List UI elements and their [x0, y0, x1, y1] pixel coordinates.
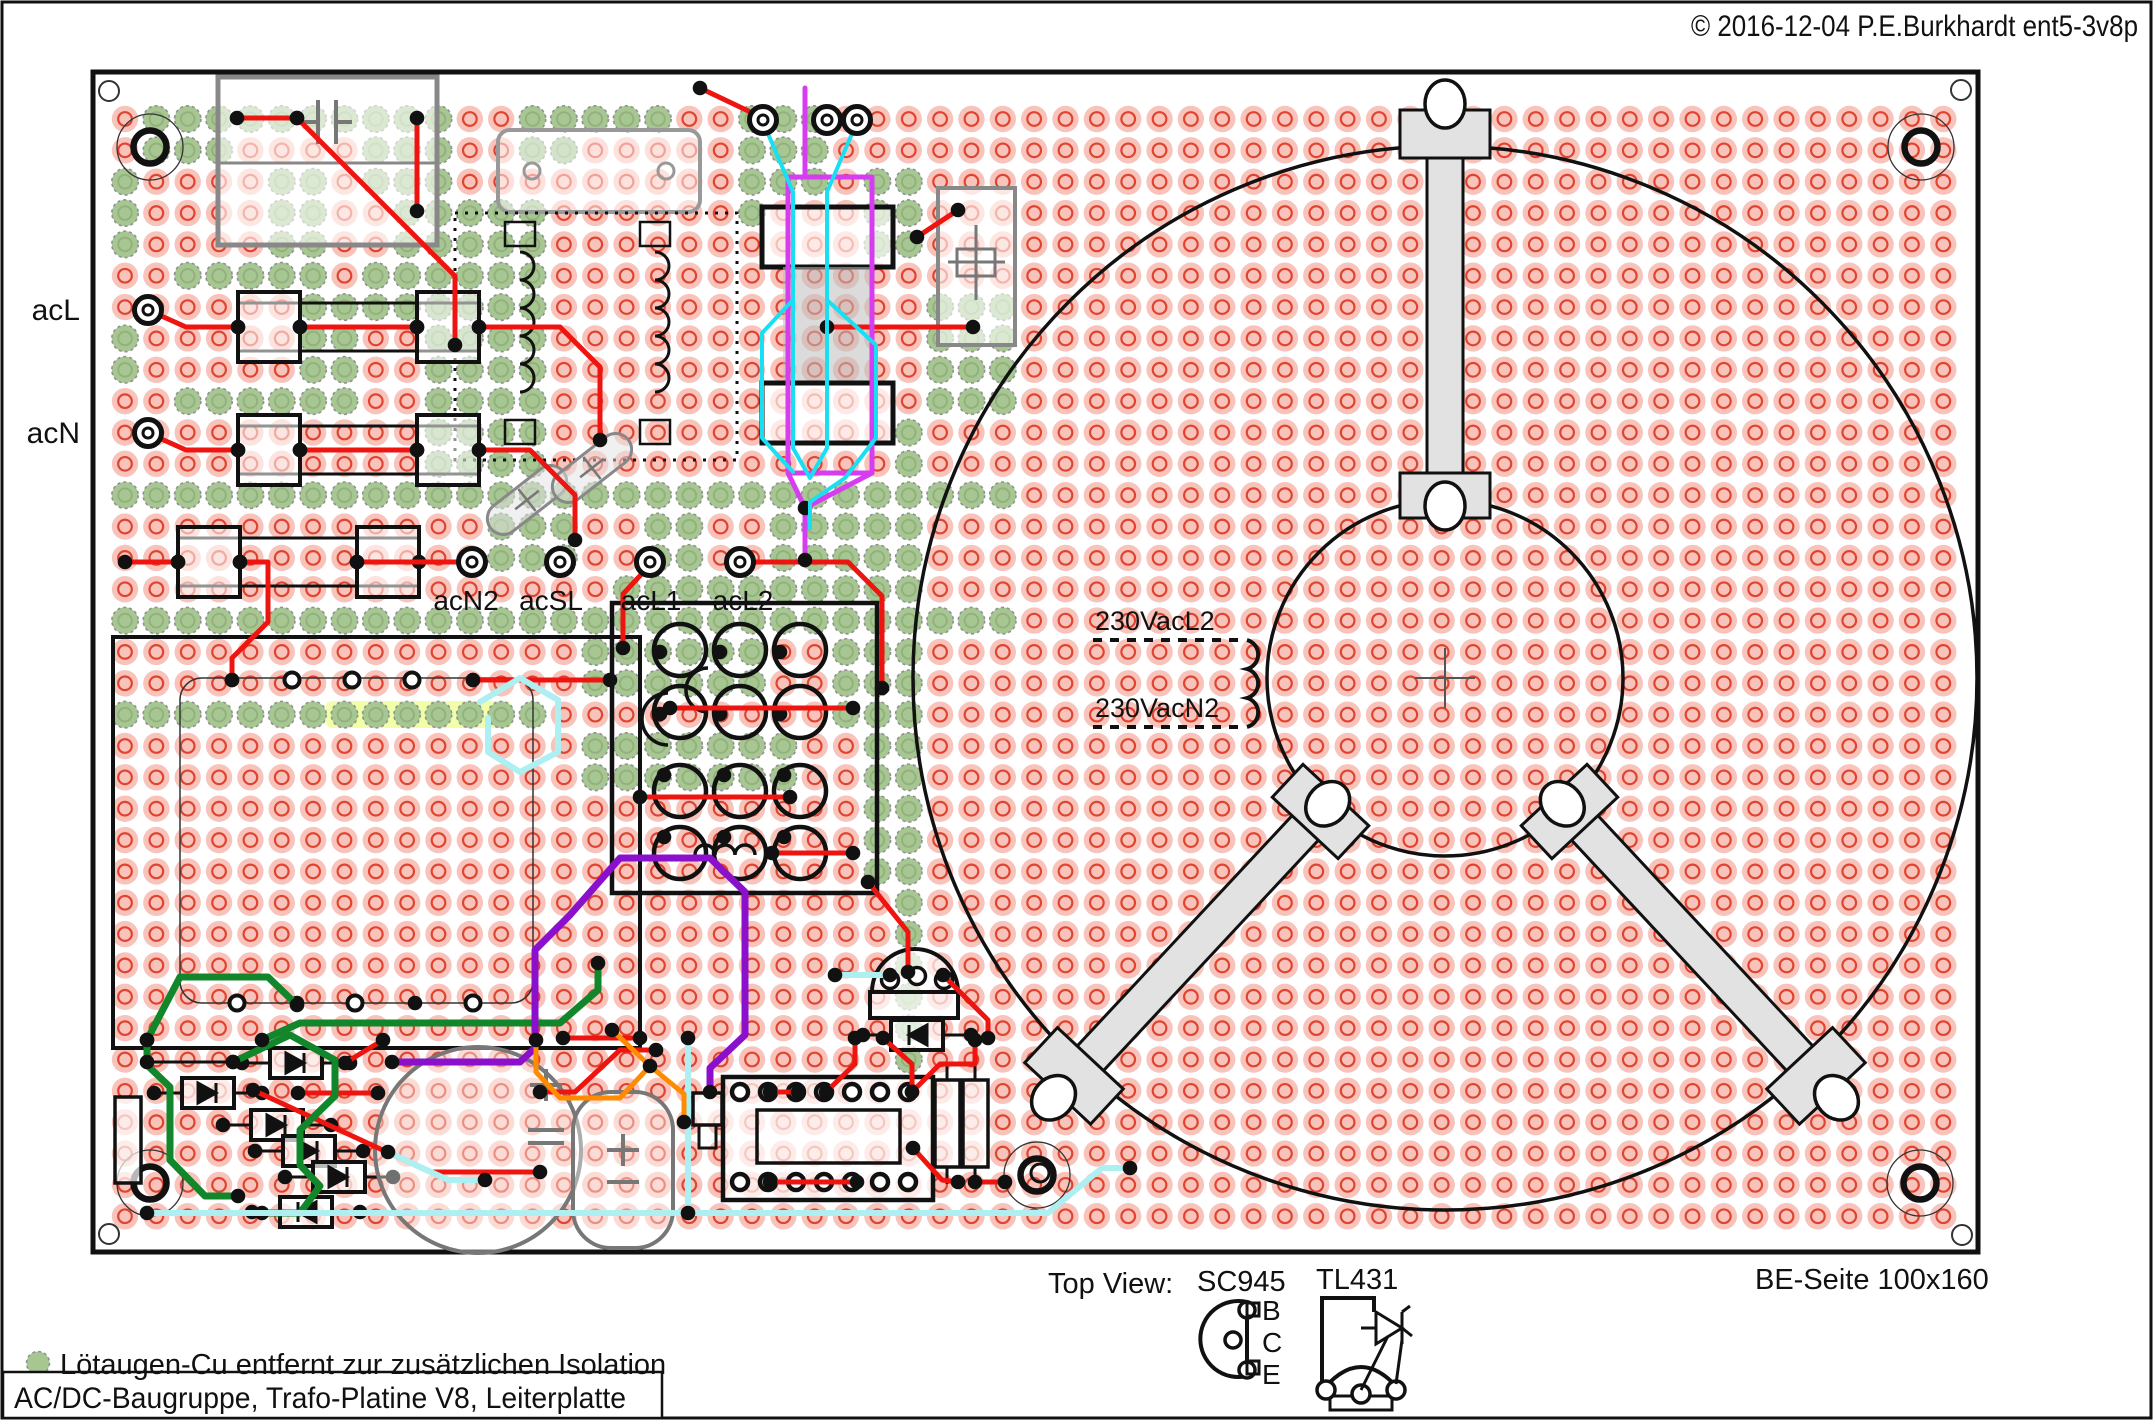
pad-halo	[1585, 294, 1611, 320]
socket-pad	[732, 1084, 748, 1100]
pad-halo	[1554, 890, 1580, 916]
pad-copper-removed	[582, 733, 608, 759]
pad-halo	[1617, 231, 1643, 257]
wire-end-dot	[677, 1115, 692, 1130]
pad-halo	[1867, 733, 1893, 759]
pad-halo	[1084, 106, 1110, 132]
input-module-outline	[218, 77, 437, 245]
pad-halo	[645, 451, 671, 477]
pad-halo	[1585, 482, 1611, 508]
pad-halo	[1491, 169, 1517, 195]
pad-halo	[1742, 1078, 1768, 1104]
pad-halo	[1272, 1078, 1298, 1104]
pad-halo	[802, 921, 828, 947]
pad-halo	[1115, 576, 1141, 602]
pad-halo	[1491, 294, 1517, 320]
pad-halo	[363, 419, 389, 445]
pad-halo	[1115, 796, 1141, 822]
pad-halo	[331, 952, 357, 978]
pad-halo	[1773, 607, 1799, 633]
pad-halo	[1648, 325, 1674, 351]
pad-copper-removed	[896, 545, 922, 571]
pad-halo	[1899, 325, 1925, 351]
pad-halo	[1805, 137, 1831, 163]
pad-halo	[175, 357, 201, 383]
pad-halo	[1397, 1109, 1423, 1135]
pad-halo	[1617, 921, 1643, 947]
pad-halo	[1648, 1172, 1674, 1198]
transistor-base	[870, 992, 958, 1018]
screw-terminal-wire-dot	[717, 768, 732, 783]
pad-halo	[958, 137, 984, 163]
pad-halo	[1021, 764, 1047, 790]
pad-halo	[1554, 231, 1580, 257]
pad-halo	[1240, 733, 1266, 759]
pad-halo	[394, 764, 420, 790]
pad-halo	[676, 357, 702, 383]
pad-halo	[1554, 294, 1580, 320]
pad-halo	[1711, 513, 1737, 539]
pad-halo	[112, 639, 138, 665]
pad-halo	[1554, 451, 1580, 477]
pad-halo	[1021, 921, 1047, 947]
wire-end-dot	[376, 1033, 391, 1048]
pad-halo	[1523, 388, 1549, 414]
pad-halo	[1021, 169, 1047, 195]
pad-copper-removed	[770, 545, 796, 571]
pad-halo	[1773, 325, 1799, 351]
pad-halo	[1554, 106, 1580, 132]
label-acN: acN	[27, 417, 80, 450]
pad-halo	[551, 419, 577, 445]
pad-halo	[1146, 263, 1172, 289]
pad-copper-removed	[896, 513, 922, 539]
pad-copper-removed	[457, 701, 483, 727]
xfmr-pin	[408, 996, 423, 1011]
pad-halo	[143, 796, 169, 822]
pad-halo	[206, 733, 232, 759]
pad-halo	[1303, 639, 1329, 665]
pad-halo	[300, 513, 326, 539]
pad-halo	[175, 1109, 201, 1135]
pad-halo	[1334, 1203, 1360, 1229]
pad-copper-removed	[488, 419, 514, 445]
pad-halo	[1429, 607, 1455, 633]
pad-halo	[1460, 576, 1486, 602]
pad-halo	[1366, 670, 1392, 696]
pad-halo	[1115, 357, 1141, 383]
pad-halo	[488, 796, 514, 822]
pad-halo	[739, 451, 765, 477]
pad-halo	[1930, 545, 1956, 571]
pad-halo	[958, 576, 984, 602]
pad-halo	[269, 827, 295, 853]
pad-halo	[1867, 576, 1893, 602]
pad-halo	[331, 419, 357, 445]
wire-end-dot	[846, 846, 861, 861]
pad-halo	[1773, 858, 1799, 884]
pad-halo	[1867, 482, 1893, 508]
pad-halo	[1021, 576, 1047, 602]
pad-halo	[1523, 984, 1549, 1010]
pad-halo	[1930, 231, 1956, 257]
pad-halo	[1617, 952, 1643, 978]
pad-halo	[1899, 576, 1925, 602]
pad-halo	[1084, 1140, 1110, 1166]
pad-halo	[363, 639, 389, 665]
pad-halo	[1240, 294, 1266, 320]
pad-copper-removed	[864, 513, 890, 539]
pad-halo	[1836, 670, 1862, 696]
pad-halo	[1272, 200, 1298, 226]
pad-copper-removed	[331, 607, 357, 633]
pad-halo	[1523, 670, 1549, 696]
pad-copper-removed	[613, 482, 639, 508]
pad-halo	[1115, 200, 1141, 226]
screw-terminal-wire-dot	[717, 830, 732, 845]
pad-halo	[1899, 858, 1925, 884]
pad-halo	[1585, 921, 1611, 947]
pad-halo	[1146, 419, 1172, 445]
pad-halo	[1334, 639, 1360, 665]
pad-halo	[1554, 952, 1580, 978]
pad-halo	[1429, 1109, 1455, 1135]
pad-halo	[1303, 200, 1329, 226]
pad-halo	[707, 388, 733, 414]
pad-halo	[1617, 1140, 1643, 1166]
pad-halo	[1052, 513, 1078, 539]
pad-halo	[551, 701, 577, 727]
pad-halo	[1899, 1015, 1925, 1041]
wire-end-dot	[981, 1031, 996, 1046]
pad-halo	[1805, 419, 1831, 445]
pad-halo	[1146, 388, 1172, 414]
pad-halo	[1334, 169, 1360, 195]
pad-halo	[1711, 263, 1737, 289]
pad-halo	[927, 451, 953, 477]
pad-halo	[1021, 513, 1047, 539]
pad-halo	[1146, 106, 1172, 132]
pad-halo	[1585, 357, 1611, 383]
pad-halo	[1334, 200, 1360, 226]
pad-halo	[927, 670, 953, 696]
pad-halo	[1303, 890, 1329, 916]
pad-halo	[707, 200, 733, 226]
pad-halo	[1585, 639, 1611, 665]
pad-halo	[582, 294, 608, 320]
pad-halo	[1679, 701, 1705, 727]
label-acN2: acN2	[433, 585, 498, 616]
pad-halo	[896, 357, 922, 383]
pad-halo	[1930, 701, 1956, 727]
pad-halo	[1052, 419, 1078, 445]
pad-halo	[1554, 670, 1580, 696]
pad-copper-removed	[237, 701, 263, 727]
pad-copper-removed	[958, 357, 984, 383]
wire-end-dot	[385, 1055, 400, 1070]
pad-halo	[1523, 482, 1549, 508]
pad-halo	[1773, 169, 1799, 195]
pad-halo	[1334, 263, 1360, 289]
pad-halo	[1711, 576, 1737, 602]
pad-halo	[1711, 1078, 1737, 1104]
pad-halo	[770, 1203, 796, 1229]
pad-halo	[958, 545, 984, 571]
pad-halo	[927, 419, 953, 445]
pad-halo	[1711, 639, 1737, 665]
pad-halo	[1742, 137, 1768, 163]
wire-end-dot	[533, 1085, 548, 1100]
pad-copper-removed	[864, 545, 890, 571]
pad-halo	[1303, 1109, 1329, 1135]
pad-halo	[1899, 513, 1925, 539]
pad-halo	[707, 952, 733, 978]
pad-halo	[1052, 890, 1078, 916]
pad-halo	[1523, 325, 1549, 351]
pad-halo	[1836, 858, 1862, 884]
pad-halo	[1115, 419, 1141, 445]
pad-copper-removed	[112, 169, 138, 195]
pad-halo	[1836, 169, 1862, 195]
pad-halo	[1429, 1046, 1455, 1072]
pad-halo	[331, 576, 357, 602]
pad-copper-removed	[833, 607, 859, 633]
pad-halo	[1146, 764, 1172, 790]
pad-halo	[1146, 1046, 1172, 1072]
pad-halo	[1554, 921, 1580, 947]
pad-copper-removed	[457, 200, 483, 226]
pad-halo	[1334, 576, 1360, 602]
pad-halo	[1429, 921, 1455, 947]
pad-halo	[1805, 921, 1831, 947]
pad-halo	[1585, 1046, 1611, 1072]
pad-halo	[1429, 1078, 1455, 1104]
wire-end-dot	[472, 443, 487, 458]
pad-halo	[1554, 513, 1580, 539]
pad-halo	[1836, 451, 1862, 477]
pad-halo	[1397, 1078, 1423, 1104]
pad-halo	[1491, 701, 1517, 727]
pad-halo	[519, 639, 545, 665]
pad-halo	[1836, 984, 1862, 1010]
pad-halo	[1052, 388, 1078, 414]
pad-halo	[1773, 952, 1799, 978]
wire-end-dot	[371, 1086, 386, 1101]
pad-halo	[1084, 921, 1110, 947]
pad-halo	[1617, 357, 1643, 383]
wire-end-dot	[231, 443, 246, 458]
pad-halo	[1366, 1046, 1392, 1072]
pad-halo	[1272, 1046, 1298, 1072]
pad-halo	[1178, 827, 1204, 853]
pad-halo	[1272, 513, 1298, 539]
pad-halo	[1303, 231, 1329, 257]
pad-copper-removed	[488, 451, 514, 477]
pad-halo	[1899, 827, 1925, 853]
pad-halo	[1146, 169, 1172, 195]
wire-end-dot	[905, 1085, 920, 1100]
pad-halo	[1334, 294, 1360, 320]
socket-pad	[732, 1174, 748, 1190]
pad-halo	[1648, 796, 1674, 822]
pad-halo	[676, 263, 702, 289]
pad-halo	[1773, 1203, 1799, 1229]
pad-halo	[1084, 984, 1110, 1010]
pad-halo	[488, 984, 514, 1010]
pad-halo	[425, 733, 451, 759]
pad-halo	[1334, 451, 1360, 477]
wire-end-dot	[410, 320, 425, 335]
pad-halo	[1742, 357, 1768, 383]
pad-halo	[1585, 890, 1611, 916]
pad-halo	[1773, 576, 1799, 602]
pad-halo	[1805, 639, 1831, 665]
pad-halo	[1084, 952, 1110, 978]
pad-halo	[1773, 419, 1799, 445]
pad-halo	[1303, 670, 1329, 696]
pad-halo	[425, 952, 451, 978]
pad-halo	[143, 890, 169, 916]
pad-halo	[1836, 639, 1862, 665]
pad-halo	[1679, 419, 1705, 445]
pad-halo	[1773, 451, 1799, 477]
pad-halo	[958, 827, 984, 853]
pad-halo	[112, 513, 138, 539]
fuse-body	[238, 292, 300, 362]
pad-halo	[175, 764, 201, 790]
pad-halo	[488, 952, 514, 978]
pad-halo	[864, 921, 890, 947]
pad-halo	[1930, 1015, 1956, 1041]
pad-halo	[1429, 1203, 1455, 1229]
pad-copper-removed	[237, 388, 263, 414]
pcb-layout-page: © 2016-12-04 P.E.Burkhardt ent5-3v8pacLa…	[0, 0, 2153, 1420]
pad-copper-removed	[112, 231, 138, 257]
pad-halo	[1021, 231, 1047, 257]
pad-halo	[582, 576, 608, 602]
pad-halo	[551, 231, 577, 257]
pad-halo	[1303, 419, 1329, 445]
pad-halo	[1303, 169, 1329, 195]
pad-halo	[1805, 576, 1831, 602]
board-corner-hole	[1952, 1225, 1972, 1245]
pad-halo	[237, 827, 263, 853]
pad-halo	[990, 858, 1016, 884]
pad-halo	[1711, 231, 1737, 257]
pad-copper-removed	[237, 263, 263, 289]
pad-halo	[927, 106, 953, 132]
pad-halo	[394, 921, 420, 947]
pad-halo	[1303, 858, 1329, 884]
pad-halo	[1240, 482, 1266, 508]
pad-halo	[1899, 796, 1925, 822]
pad-halo	[1240, 1015, 1266, 1041]
pad-halo	[1773, 764, 1799, 790]
pad-halo	[802, 1015, 828, 1041]
pad-halo	[1397, 1172, 1423, 1198]
pad-halo	[1899, 294, 1925, 320]
pad-halo	[1397, 670, 1423, 696]
pad-halo	[1084, 576, 1110, 602]
pad-halo	[1648, 1046, 1674, 1072]
pad-halo	[1366, 733, 1392, 759]
pad-halo	[269, 576, 295, 602]
pad-halo	[1711, 388, 1737, 414]
pad-halo	[1836, 890, 1862, 916]
pad-halo	[394, 952, 420, 978]
pad-halo	[1742, 858, 1768, 884]
pad-halo	[457, 952, 483, 978]
pad-halo	[1178, 1015, 1204, 1041]
pad-halo	[1523, 701, 1549, 727]
pad-halo	[1115, 325, 1141, 351]
pad-copper-removed	[425, 388, 451, 414]
pad-halo	[1366, 325, 1392, 351]
pad-halo	[1867, 325, 1893, 351]
pad-halo	[551, 764, 577, 790]
pad-copper-removed	[896, 764, 922, 790]
pad-halo	[1334, 1015, 1360, 1041]
pad-halo	[1899, 451, 1925, 477]
pad-halo	[1711, 545, 1737, 571]
label-tl431: TL431	[1316, 1264, 1398, 1296]
pad-halo	[112, 106, 138, 132]
pad-halo	[1617, 106, 1643, 132]
pad-halo	[551, 670, 577, 696]
pad-halo	[1867, 1203, 1893, 1229]
pad-halo	[613, 325, 639, 351]
pad-halo	[1397, 419, 1423, 445]
pad-halo	[707, 263, 733, 289]
pad-halo	[1554, 1046, 1580, 1072]
pad-copper-removed	[770, 576, 796, 602]
pad-halo	[1742, 513, 1768, 539]
pad-halo	[990, 764, 1016, 790]
pad-halo	[739, 513, 765, 539]
pad-halo	[1240, 263, 1266, 289]
terminal-top-2	[814, 107, 841, 134]
pad-halo	[363, 733, 389, 759]
pad-halo	[1930, 1046, 1956, 1072]
pad-halo	[770, 1015, 796, 1041]
pad-halo	[1742, 419, 1768, 445]
pad-halo	[707, 1203, 733, 1229]
pad-halo	[1648, 200, 1674, 226]
pad-halo	[1617, 200, 1643, 226]
pad-halo	[1366, 576, 1392, 602]
pad-halo	[1240, 1203, 1266, 1229]
pad-halo	[1585, 325, 1611, 351]
pad-halo	[1648, 451, 1674, 477]
pad-halo	[927, 1203, 953, 1229]
pad-halo	[1836, 1172, 1862, 1198]
pad-halo	[1272, 263, 1298, 289]
pad-halo	[206, 921, 232, 947]
pad-halo	[1805, 482, 1831, 508]
pad-halo	[143, 325, 169, 351]
pad-copper-removed	[958, 607, 984, 633]
pad-halo	[1805, 357, 1831, 383]
pad-halo	[1679, 1015, 1705, 1041]
pad-halo	[958, 670, 984, 696]
pad-halo	[1272, 231, 1298, 257]
pad-halo	[143, 545, 169, 571]
pad-halo	[990, 921, 1016, 947]
pad-halo	[143, 921, 169, 947]
pad-halo	[1679, 357, 1705, 383]
pad-copper-removed	[833, 639, 859, 665]
pad-halo	[1209, 513, 1235, 539]
